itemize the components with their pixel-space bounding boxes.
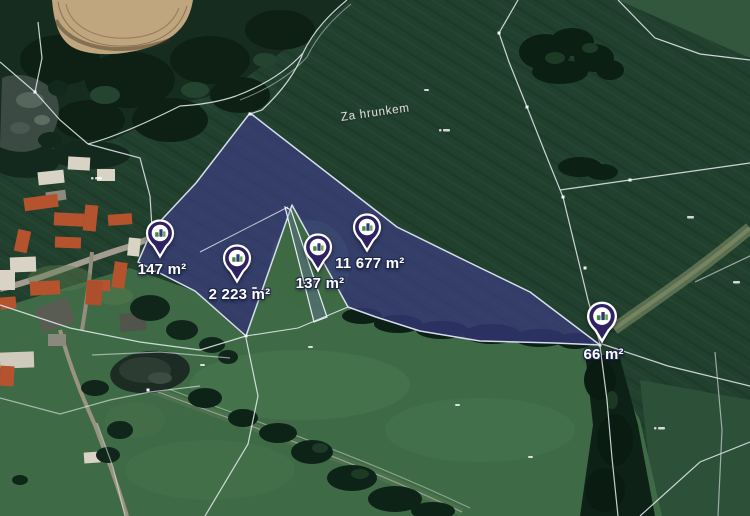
pond-upper	[0, 75, 68, 152]
parcel-area-label: 66 m²	[584, 346, 624, 363]
map-pin-icon	[222, 244, 252, 284]
parcel-area-label: 2 223 m²	[209, 286, 271, 303]
map-pin-icon	[586, 301, 618, 344]
parcel-area-label: 137 m²	[296, 275, 345, 292]
map-pin-icon	[352, 213, 382, 253]
map-pin-icon	[145, 219, 175, 259]
parcel-area-label: 147 m²	[138, 261, 187, 278]
map-canvas[interactable]: Za hrunkem 147 m² 2 223 m²	[0, 0, 750, 516]
parcel-area-label: 11 677 m²	[335, 255, 404, 272]
map-pin-icon	[303, 233, 333, 273]
